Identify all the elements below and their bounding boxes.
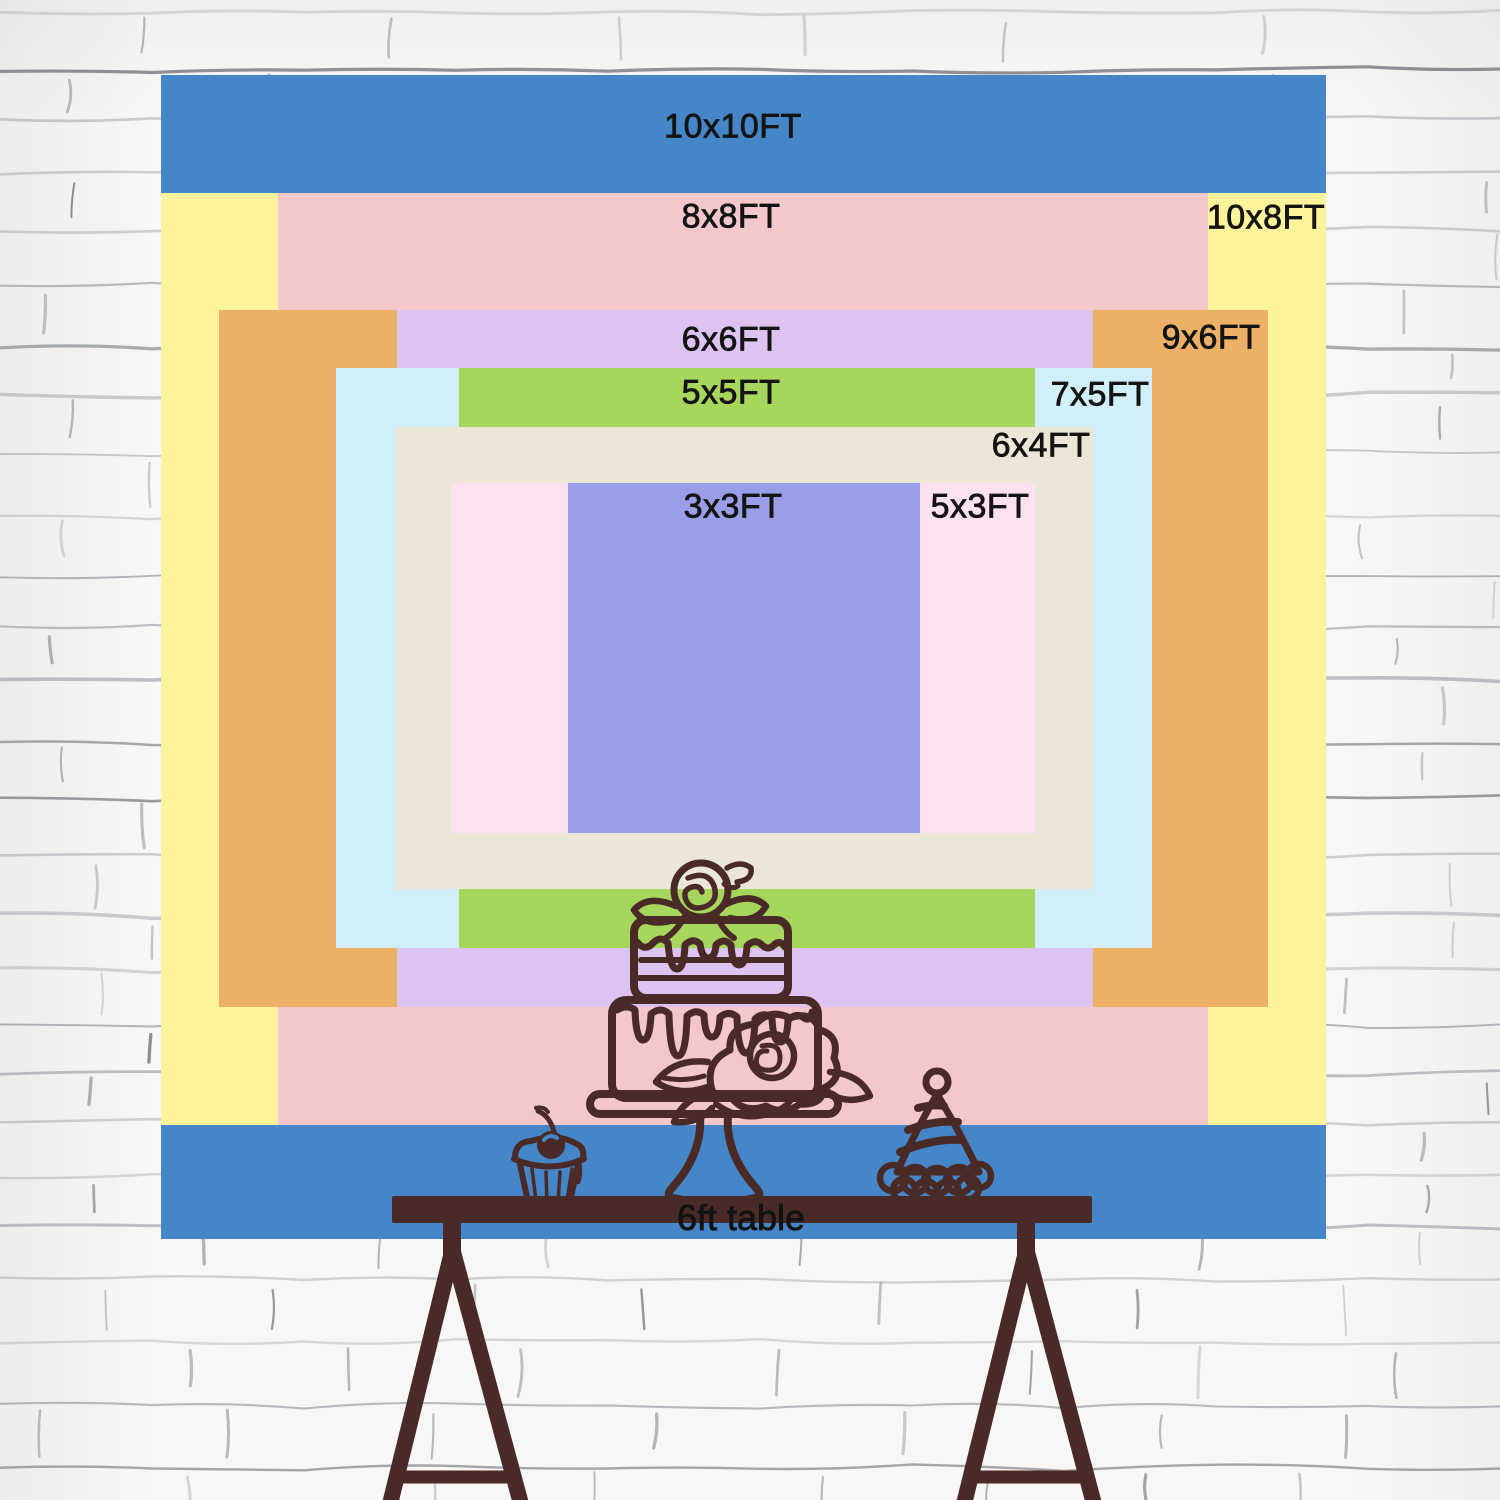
table-leg-left-b xyxy=(453,1252,521,1500)
table-leg-right-a xyxy=(964,1252,1026,1500)
backdrop-size-chart: 10x10FT 10x8FT 8x8FT 9x6FT 6x6FT 7x5FT 5… xyxy=(0,0,1500,1500)
cupcake-drawing xyxy=(514,1108,584,1206)
table-size-label: 6ft table xyxy=(677,1197,805,1239)
party-hat-drawing xyxy=(880,1071,991,1203)
cake-drawing xyxy=(590,863,870,1203)
table-leg-right-b xyxy=(1027,1252,1094,1500)
party-table-illustration xyxy=(0,0,1500,1500)
table-legs xyxy=(390,1252,1094,1500)
table-leg-left-a xyxy=(390,1252,452,1500)
